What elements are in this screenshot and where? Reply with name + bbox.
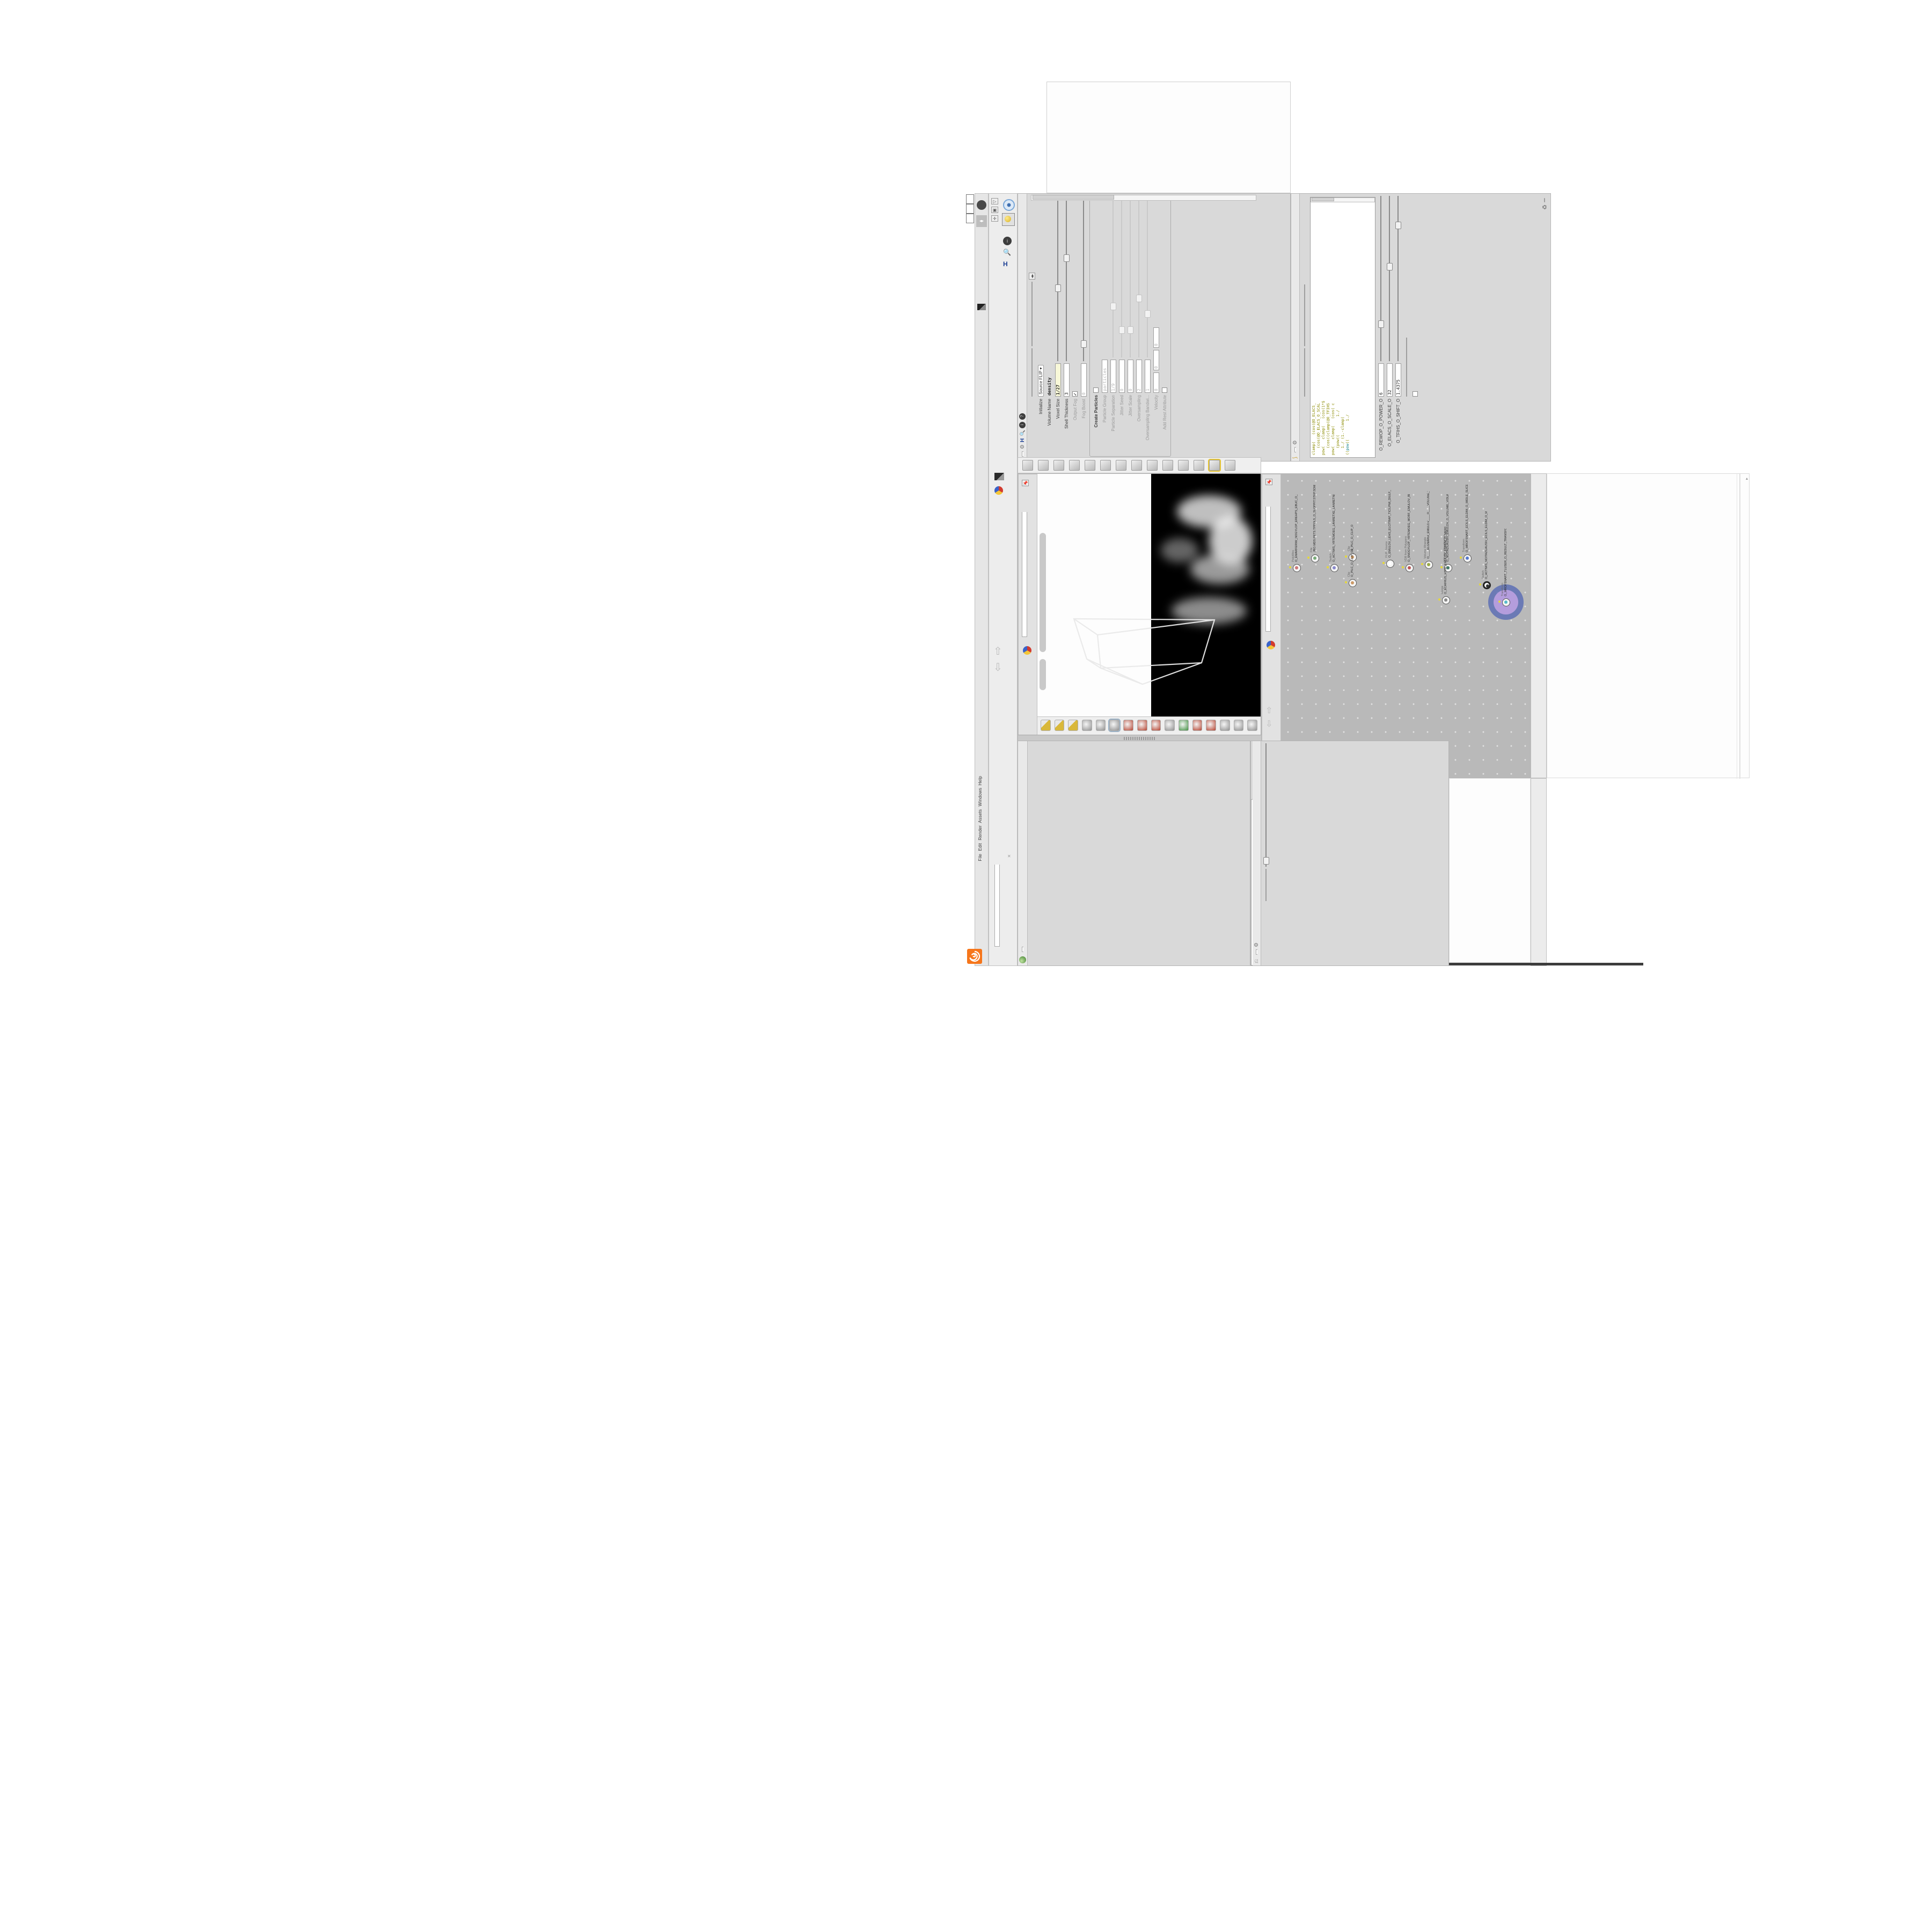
param-label: Oversampling Bandwi... [1145,395,1150,455]
pin-icon[interactable]: 📌 [1022,480,1029,486]
axis-color-icon[interactable] [1179,720,1189,731]
switch-node-tab[interactable] [1256,949,1257,955]
scroll-up-icon[interactable]: ▴ [1746,476,1748,481]
node-flag-dot[interactable] [1498,601,1501,603]
code-line: pow( clamp( (cos(1*$ [1321,200,1326,455]
arrow-up-icon[interactable]: ⇧ [1265,705,1272,716]
menu-item-file[interactable]: File [977,854,983,861]
param-label: Shell Thickness [1064,399,1069,459]
asset-name-field[interactable] [1304,348,1305,397]
network-node[interactable] [1406,564,1414,572]
param-row: O_REWOP_O_POWER_O6 [1377,196,1385,459]
menu-item-edit[interactable]: Edit [977,843,983,851]
pane-edge-line [1449,963,1643,965]
node-flag-dot[interactable] [1421,563,1423,565]
param-slider[interactable] [1064,196,1069,361]
arrow-up-icon[interactable]: ⇧ [993,645,1009,658]
close-button[interactable] [966,194,974,204]
rgb-ball-icon [1023,646,1031,655]
network-tab[interactable] [1265,507,1271,632]
viewport-toolbar [1037,716,1261,735]
param-slider[interactable] [1387,196,1392,361]
empty-pane [1046,82,1291,193]
tree-view-pane: ▴ [1547,473,1750,778]
param-row: O_TFIHS_O_SHIFT_O1.4375 [1394,196,1402,459]
rgb-ball-icon [1267,641,1275,649]
back-icon[interactable] [1082,720,1092,731]
viewport-pane: 📌 [1018,473,1261,778]
network-node[interactable] [1425,561,1433,569]
network-editor-pane: 📌 ⇧ ⇩ PolyWireO_EMARFERIW_NOGYLOP_EREHPS… [1261,473,1531,778]
param-row: Jitter Scale0 [1126,200,1134,455]
node-label: MergeO_ECAFRUS_HTIW_EMULOV_EGREM_O_MERGE… [1441,526,1447,594]
param-field[interactable]: particles [1102,360,1108,393]
flip-source-pane: ⚙ H 🔍 i ? ◂▸ InitializeSource FLIP ▾Volu… [1018,193,1291,462]
help-icon[interactable]: ? [1019,413,1026,420]
param-row: Particle Separation1/9 [1109,200,1117,455]
box-points-shelf-icon[interactable] [1100,460,1111,471]
grid-highlight-shelf-icon[interactable] [1209,460,1220,471]
param-field[interactable]: 0 [1128,360,1133,393]
param-field[interactable]: 0 [1153,327,1159,348]
clapperboard-icon [994,473,1004,480]
code-line: (cos((clamp(@O_TFIHS [1326,200,1331,455]
fan-shelf-icon[interactable] [1053,460,1064,471]
shade-smooth-icon[interactable] [1055,720,1065,731]
param-row: Voxel Size1/27 [1054,196,1062,459]
menu-item-assets[interactable]: Assets [977,809,983,823]
param-label: Create Particles [1094,395,1099,455]
film-icon[interactable] [1247,720,1257,731]
cut-dim-icon[interactable] [1165,720,1175,731]
param-row: Oversampling Bandwi...1 [1144,200,1151,455]
snap-magnet-icon[interactable] [1206,720,1216,731]
enforce-prototypes-checkbox[interactable] [1413,391,1418,397]
close-tab-icon[interactable]: ✕ [1007,854,1011,859]
cloth-shelf-icon[interactable] [1069,460,1080,471]
param-slider[interactable] [1081,196,1086,361]
houdini-h-icon: H [1003,260,1012,269]
param-slider[interactable] [1110,200,1116,357]
param-row: Velocity000 [1152,200,1160,455]
snap-grid-icon[interactable] [1192,720,1203,731]
param-field[interactable]: 1/9 [1110,360,1116,393]
param-field[interactable]: 0 [1119,360,1125,393]
node-flag-dot[interactable] [1327,566,1329,568]
recook-icon[interactable]: ♻ [1541,204,1548,210]
asset-path-field[interactable] [1031,282,1033,346]
magnifier-icon[interactable]: 🔍 [1003,248,1012,257]
param-label: Add Rest Attribute [1162,395,1167,455]
node-flag-dot[interactable] [1402,566,1404,568]
param-label: O_REWOP_O_POWER_O [1379,399,1384,459]
asset-path-field[interactable] [1304,284,1305,346]
param-field[interactable]: 1.4375 [1395,363,1401,397]
chooser-icon[interactable]: ◂▸ [1029,273,1035,280]
brushes-icon[interactable] [1234,720,1244,731]
select-input-slider[interactable] [1263,743,1269,867]
wireframe-geometry [1037,474,1261,716]
code-line: clamp( (cos(@O_ELACS_ [1312,200,1316,455]
param-label: O_TFIHS_O_SHIFT_O [1396,399,1401,459]
param-slider[interactable] [1395,196,1401,361]
param-field[interactable]: 0 [1153,350,1159,370]
volume-visualization-pane [1018,741,1250,966]
param-label: Initialize [1038,399,1043,459]
volume-wrangle-pane: ⟆ ⚙ clamp( (cos(@O_ELACS_ (cos(@O_ELACS_… [1291,193,1551,462]
param-label: Velocity [1154,395,1159,455]
input-operators-label [1271,741,1274,965]
param-slider[interactable] [1128,200,1133,357]
pane-scrollbar[interactable] [1031,195,1256,201]
info-icon[interactable]: i [1019,422,1026,428]
torus-shelf-icon[interactable] [1131,460,1142,471]
code-line: ((pow(( 1./ [1345,200,1350,455]
camera-pan-shelf-icon[interactable] [1178,460,1189,471]
stop-icon[interactable]: ▣ [991,207,998,213]
code-line: 1./ (1.-clamp( [1341,200,1345,455]
gear-icon[interactable]: ⚙ [1292,440,1298,445]
volviz-node-tab[interactable] [1022,947,1023,952]
gear-icon[interactable]: ⚙ [1254,942,1260,947]
param-label: Voxel Size [1056,399,1060,459]
param-field[interactable]: 1 [1145,360,1151,393]
pan-icon[interactable]: ✛ [991,215,998,222]
shade-flat-icon[interactable] [1041,720,1051,731]
param-row: O_ELACS_O_SCALE_O32 [1386,196,1393,459]
comet-shelf-icon[interactable] [1022,460,1033,471]
status-message [1534,782,1544,964]
node-label: SwitchO_HCTIWS_YRTEMOEG_LANRETXE_LANRETN… [1329,494,1336,562]
rgb-ball-icon [994,486,1003,495]
c4-display-icon[interactable] [1109,720,1119,731]
param-label: Particle Separation [1111,395,1116,455]
param-label: Particle Group [1102,395,1107,455]
projection-pill[interactable] [1040,659,1046,690]
param-checkbox[interactable] [1162,387,1167,393]
param-slider[interactable] [1378,196,1384,361]
node-label: FileJBO.MDS.PETS.TPPOLS_O_SLOPPIT.STEP.S… [1310,485,1316,552]
empty-pane [1449,778,1531,963]
magnifier-icon[interactable]: 🔍 [1020,430,1026,436]
menu-item-render[interactable]: Render [977,825,983,840]
volumes-to-writeto-field[interactable] [1406,338,1407,397]
viewport-tab[interactable] [1022,512,1027,637]
param-field[interactable]: 0 [1081,363,1087,397]
shade-wire-icon[interactable] [1068,720,1078,731]
film-roll-shelf-icon[interactable] [1225,460,1235,471]
select-arrow-icon[interactable] [1096,720,1106,731]
viewport-canvas[interactable] [1037,474,1261,716]
sphere-tool-icon [1005,216,1011,222]
param-slider[interactable] [1145,200,1150,357]
volume-visualization-icon [1019,956,1026,963]
arrow-down-icon[interactable]: ⇩ [993,661,1009,675]
param-slider[interactable] [1119,200,1124,357]
curve-falloff-shelf-icon[interactable] [1085,460,1095,471]
forward-icon[interactable] [1220,720,1230,731]
node-label: TransformO_MROFSNART_ECILS_ELDIM_O_MIDLE… [1462,485,1469,552]
wrangle-node-tab[interactable] [1294,447,1296,452]
param-row: Oversampling2 [1135,200,1143,455]
param-row: Create Particles [1092,200,1100,455]
auto-update-dropdown[interactable] [1544,198,1545,202]
main-menu: HelpWindowsAssetsRenderEditFile [977,773,983,864]
vex-code-editor[interactable]: clamp( (cos(@O_ELACS_ (cos(@O_ELACS_O_SC… [1310,197,1375,458]
move-handles-icon[interactable] [1123,720,1133,731]
spray-shelf-icon[interactable] [1038,460,1049,471]
node-flag-dot[interactable] [1382,562,1385,564]
network-node[interactable] [1442,596,1450,604]
param-slider[interactable] [1136,200,1141,357]
code-line: pow( clamp( (cos( c [1331,200,1336,455]
param-checkbox[interactable] [1093,387,1099,393]
node-label: ClipO_PILC_O_CLIP_O2 [1348,509,1354,577]
param-label: Volume Name [1047,399,1052,459]
pin-icon[interactable]: 📌 [1265,479,1272,485]
network-node[interactable] [1293,564,1301,572]
param-row: Fog Boost0 [1080,196,1087,459]
info-icon[interactable]: i [1003,237,1012,245]
param-label: Fog Boost [1081,399,1086,459]
mantra-pane-tab[interactable] [994,865,1000,947]
menu-item-help[interactable]: Help [977,776,983,785]
node-flag-dot[interactable] [1289,566,1291,568]
node-flag-dot[interactable] [1479,583,1481,586]
network-node[interactable] [1349,579,1357,587]
node-flag-dot[interactable] [1307,557,1309,559]
window-controls [966,194,974,223]
param-row: Volume Namedensity [1045,196,1053,459]
target-icon[interactable] [1003,199,1015,211]
node-label: TransformO_MROFSNART_TLUSER_O_RESULT_TRA… [1501,529,1507,596]
node-flag-dot[interactable] [1345,555,1347,558]
network-node[interactable] [1330,564,1338,572]
node-label: PolyWireO_EMARFERIW_NOGYLOP_EREHPS_EBUC_… [1292,494,1298,562]
param-label: Output Fog [1073,399,1078,459]
param-row: Particle Groupparticles [1101,200,1108,455]
minimize-button[interactable] [966,214,974,223]
switch-pane: ⎌ ⚙ [1250,741,1449,966]
menu-bar-strip: ◂▸ HelpWindowsAssetsRenderEditFile [975,193,989,966]
gear-icon[interactable]: ⚙ [1020,444,1026,449]
node-flag-dot[interactable] [1345,581,1347,583]
param-row: Jitter Seed0 [1118,200,1125,455]
network-node[interactable] [1483,581,1491,589]
param-field[interactable]: 2 [1136,360,1142,393]
code-line: (pow(( 1./ [1336,200,1341,455]
flip-source-node-tab[interactable] [1022,451,1023,457]
camera-menu-pill[interactable] [1040,533,1046,652]
param-row: InitializeSource FLIP ▾ [1037,196,1044,459]
network-node[interactable] [1311,554,1319,562]
help-icon[interactable] [977,200,986,210]
param-field[interactable]: 1/27 [1055,363,1061,397]
node-label: SwitchO_HCTIWS_NOITAZILAUSIV_ECILS_ELDIM… [1482,511,1488,579]
param-label: O_ELACS_O_SCALE_O [1387,399,1392,459]
houdini-logo [967,949,982,964]
menu-item-windows[interactable]: Windows [977,788,983,806]
select-tool-icon[interactable] [1002,213,1015,226]
param-checkbox[interactable]: ✓ [1072,391,1078,397]
shelf-strip: ▷ ▣ ✛ i 🔍 H ⇧ ⇩ ✕ [989,193,1018,966]
param-dropdown[interactable]: Source FLIP ▾ [1038,365,1044,397]
network-node[interactable] [1463,554,1472,562]
scale-handles-icon[interactable] [1151,720,1161,731]
clapperboard-icon [977,304,986,310]
network-node[interactable] [1386,560,1394,568]
node-flag-dot[interactable] [1460,557,1462,559]
param-label: Oversampling [1137,395,1141,455]
status-bar-strip [1531,778,1547,966]
houdini-h-icon: H [1020,438,1026,442]
param-field[interactable]: 6 [1378,363,1384,397]
shelf-tools-row [1018,457,1261,473]
node-label: Volume WrangleO____ELGNARW_EMULOV____O__… [1424,491,1430,559]
node-flag-dot[interactable] [1438,598,1440,601]
param-row: Output Fog✓ [1071,196,1079,459]
network-node[interactable] [1502,598,1510,606]
param-label: Jitter Scale [1128,395,1133,455]
param-slider[interactable] [1055,196,1060,361]
pane-grip-icon[interactable]: ◂▸ [976,215,987,227]
panel-split-shelf-icon[interactable] [1162,460,1173,471]
arrow-down-icon[interactable]: ⇩ [1265,719,1272,729]
play-icon[interactable]: ▷ [991,198,998,204]
select-input-field[interactable] [1265,869,1267,901]
param-label: Jitter Seed [1119,395,1124,455]
code-scrollbar[interactable] [1311,197,1375,202]
particles-group: Create ParticlesParticle GroupparticlesP… [1089,198,1171,457]
node-label: VDB from PolygonsO_SNOGYLOP_YRTEMOEG_MOR… [1404,494,1411,562]
window-title-strip [1531,473,1547,778]
param-field[interactable]: 32 [1387,363,1393,397]
rotate-handles-icon[interactable] [1137,720,1147,731]
param-field[interactable]: 0 [1153,372,1159,393]
param-field[interactable]: 3 [1064,363,1070,397]
switch-node-icon: ⎌ [1254,959,1260,963]
wrangle-icon: ⟆ [1292,457,1298,459]
dot-shelf-icon[interactable] [1194,460,1204,471]
code-line: (cos(@O_ELACS_O_SCAL [1316,200,1321,455]
kaleidoscope-stage: ◂▸ HelpWindowsAssetsRenderEditFile ▷ ▣ ✛… [166,80,1766,1851]
glue-shelf-icon[interactable] [1147,460,1158,471]
tripod-shelf-icon[interactable] [1116,460,1126,471]
asset-name-field[interactable] [1031,348,1033,397]
network-canvas[interactable]: PolyWireO_EMARFERIW_NOGYLOP_EREHPS_EBUC_… [1281,474,1530,778]
node-label: FLIP SourceO_EMULOV_LEHS_ELCITRAP_TICILP… [1385,490,1392,558]
restore-button[interactable] [966,204,974,214]
houdini-desktop-quadrant: ◂▸ HelpWindowsAssetsRenderEditFile ▷ ▣ ✛… [966,80,1766,966]
param-row: Shell Thickness3 [1063,196,1070,459]
param-row: Add Rest Attribute [1161,200,1168,455]
param-field[interactable]: density [1047,363,1052,397]
